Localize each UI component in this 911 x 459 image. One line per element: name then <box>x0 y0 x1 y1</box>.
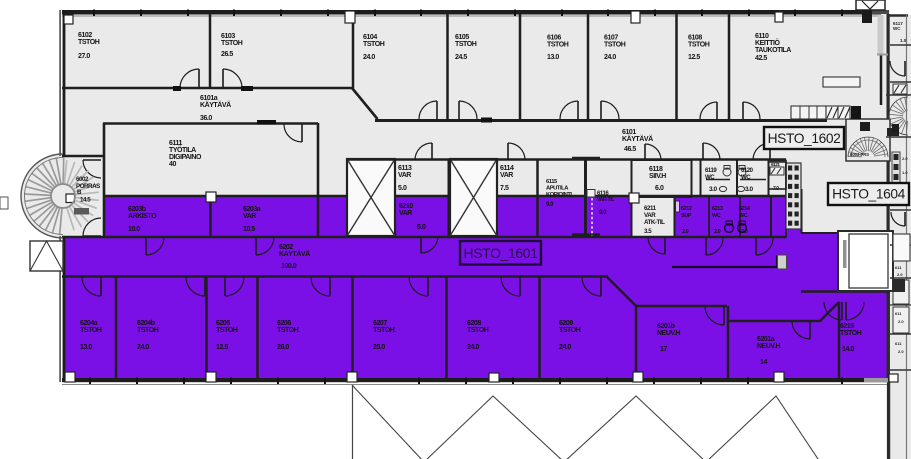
svg-text:2.0: 2.0 <box>902 156 908 161</box>
svg-text:6119: 6119 <box>705 168 717 174</box>
svg-text:6208: 6208 <box>467 320 481 327</box>
svg-text:10.0: 10.0 <box>128 226 140 233</box>
svg-text:TSTOH: TSTOH <box>688 42 710 49</box>
svg-text:6101: 6101 <box>622 129 636 136</box>
svg-text:ATK-TIL: ATK-TIL <box>644 219 665 226</box>
svg-text:611: 611 <box>895 265 902 270</box>
svg-text:6108: 6108 <box>688 35 702 42</box>
svg-text:6204b: 6204b <box>137 320 155 327</box>
svg-text:36.0: 36.0 <box>200 115 212 122</box>
svg-text:VAR: VAR <box>500 172 513 179</box>
svg-text:TSTOH: TSTOH <box>467 327 489 334</box>
svg-text:6106: 6106 <box>547 35 561 42</box>
svg-text:6213: 6213 <box>712 206 723 212</box>
svg-text:TSTOH: TSTOH <box>78 39 100 46</box>
svg-text:WC: WC <box>741 175 751 181</box>
svg-text:46.5: 46.5 <box>624 146 636 153</box>
svg-text:TAUKOTILA: TAUKOTILA <box>755 47 791 54</box>
svg-text:6114: 6114 <box>500 165 514 172</box>
svg-text:2.0: 2.0 <box>898 319 904 324</box>
svg-text:5.0: 5.0 <box>398 185 407 192</box>
svg-text:HSTO_1602: HSTO_1602 <box>768 131 841 146</box>
svg-text:6201b: 6201b <box>657 323 675 330</box>
svg-text:SIIV.H: SIIV.H <box>649 173 666 180</box>
svg-text:24.5: 24.5 <box>455 54 467 61</box>
svg-text:6102: 6102 <box>78 32 92 39</box>
svg-text:KÄYTÄVÄ: KÄYTÄVÄ <box>279 250 310 258</box>
svg-text:17: 17 <box>660 346 667 353</box>
svg-text:WC: WC <box>739 213 748 219</box>
svg-text:6211: 6211 <box>644 205 657 212</box>
svg-text:42.5: 42.5 <box>755 55 767 62</box>
svg-text:TSTOH: TSTOH <box>221 40 243 47</box>
svg-text:6215: 6215 <box>840 323 854 330</box>
svg-text:VAR: VAR <box>644 212 656 219</box>
svg-text:2.0: 2.0 <box>741 229 748 235</box>
svg-text:6207: 6207 <box>373 320 387 327</box>
svg-text:6204a: 6204a <box>80 320 98 327</box>
svg-text:40: 40 <box>169 161 176 168</box>
svg-text:5.0: 5.0 <box>417 224 426 231</box>
svg-text:HSTO_1604: HSTO_1604 <box>832 187 906 202</box>
svg-text:6203a: 6203a <box>243 206 261 213</box>
svg-text:12.5: 12.5 <box>216 344 228 351</box>
svg-text:APUTILA: APUTILA <box>546 186 569 192</box>
svg-text:6105: 6105 <box>455 34 469 41</box>
svg-text:24.0: 24.0 <box>559 344 571 351</box>
svg-text:6103: 6103 <box>221 33 235 40</box>
svg-text:26.5: 26.5 <box>221 51 233 58</box>
svg-text:6115: 6115 <box>546 179 558 185</box>
svg-text:25.0: 25.0 <box>373 344 385 351</box>
svg-text:6212: 6212 <box>681 206 692 212</box>
svg-text:24.0: 24.0 <box>604 54 616 61</box>
svg-text:6206: 6206 <box>277 320 291 327</box>
svg-text:NEUV.H: NEUV.H <box>657 330 681 337</box>
svg-text:3.5: 3.5 <box>644 228 652 235</box>
svg-text:DIGIPAINO: DIGIPAINO <box>169 154 202 161</box>
svg-text:14.5: 14.5 <box>80 197 91 204</box>
svg-text:6205: 6205 <box>216 320 230 327</box>
svg-text:2.0: 2.0 <box>898 349 904 354</box>
svg-text:6209: 6209 <box>559 320 573 327</box>
svg-text:6121: 6121 <box>771 162 780 167</box>
svg-text:TSTOH: TSTOH <box>363 41 385 48</box>
svg-text:100.0: 100.0 <box>281 263 297 270</box>
svg-text:14.0: 14.0 <box>842 346 854 353</box>
svg-text:TSTOH: TSTOH <box>137 327 159 334</box>
svg-text:6118: 6118 <box>649 166 663 173</box>
svg-text:2.0: 2.0 <box>682 229 689 235</box>
svg-text:9.0: 9.0 <box>599 210 607 216</box>
svg-text:6110: 6110 <box>755 33 769 40</box>
svg-text:NEUV.H: NEUV.H <box>757 343 781 350</box>
svg-text:6.0: 6.0 <box>655 185 664 192</box>
svg-text:TSTOH: TSTOH <box>373 327 395 334</box>
svg-text:WC: WC <box>712 213 721 219</box>
svg-text:TSTOH: TSTOH <box>559 327 581 334</box>
svg-text:7.5: 7.5 <box>500 185 509 192</box>
svg-text:TSTOH: TSTOH <box>216 327 238 334</box>
svg-text:10.5: 10.5 <box>243 226 255 233</box>
svg-text:TSTOH: TSTOH <box>604 42 626 49</box>
svg-text:2.0: 2.0 <box>897 272 903 277</box>
svg-text:6214: 6214 <box>739 206 751 212</box>
svg-text:6120: 6120 <box>741 168 754 174</box>
svg-text:24.0: 24.0 <box>137 344 149 351</box>
svg-text:WC: WC <box>705 175 715 181</box>
svg-text:VAR: VAR <box>398 172 411 179</box>
svg-text:9.0: 9.0 <box>546 202 554 208</box>
svg-text:611: 611 <box>895 311 902 316</box>
svg-text:2.0: 2.0 <box>714 229 721 235</box>
svg-text:KÄYTÄVÄ: KÄYTÄVÄ <box>200 101 231 109</box>
svg-text:KÄYTÄVÄ: KÄYTÄVÄ <box>622 135 653 143</box>
svg-text:WC: WC <box>893 26 901 31</box>
svg-text:TSTOH: TSTOH <box>277 327 299 334</box>
svg-text:6003 PRS: 6003 PRS <box>850 152 869 157</box>
svg-text:6101a: 6101a <box>200 95 218 102</box>
svg-text:6202: 6202 <box>279 244 293 251</box>
svg-text:1.0: 1.0 <box>900 38 907 43</box>
svg-text:TSTOH: TSTOH <box>80 327 102 334</box>
svg-text:14: 14 <box>760 359 767 366</box>
svg-text:VAR-TIL: VAR-TIL <box>597 197 615 203</box>
svg-text:6210: 6210 <box>399 203 413 210</box>
svg-text:12.5: 12.5 <box>688 54 700 61</box>
svg-text:TSTOH: TSTOH <box>547 42 569 49</box>
svg-text:6111: 6111 <box>169 140 183 147</box>
svg-text:HSTO_1601: HSTO_1601 <box>464 245 539 261</box>
svg-text:3.0: 3.0 <box>745 186 754 193</box>
svg-text:13.0: 13.0 <box>80 344 92 351</box>
svg-text:611: 611 <box>895 341 902 346</box>
svg-text:24.0: 24.0 <box>467 344 479 351</box>
svg-text:VAR: VAR <box>399 210 412 217</box>
svg-text:1.0: 1.0 <box>902 170 908 175</box>
svg-text:6203b: 6203b <box>128 206 146 213</box>
svg-text:6104: 6104 <box>363 34 377 41</box>
svg-text:6201a: 6201a <box>757 336 775 343</box>
svg-text:SUP: SUP <box>681 213 692 219</box>
svg-text:TSTOH: TSTOH <box>455 41 477 48</box>
svg-text:6113: 6113 <box>398 165 412 172</box>
svg-text:TYÖTILA: TYÖTILA <box>169 145 196 154</box>
svg-text:KEITTIÖ: KEITTIÖ <box>755 38 780 47</box>
svg-text:ARKISTO: ARKISTO <box>128 213 157 220</box>
svg-text:13.0: 13.0 <box>547 54 559 61</box>
svg-text:26.0: 26.0 <box>277 344 289 351</box>
svg-text:6002: 6002 <box>76 176 89 183</box>
svg-text:3.0: 3.0 <box>709 186 718 193</box>
svg-text:KOPIOINTI: KOPIOINTI <box>546 192 572 198</box>
svg-text:TSTOH: TSTOH <box>840 330 862 337</box>
svg-text:VAR: VAR <box>243 213 256 220</box>
svg-text:24.0: 24.0 <box>363 54 375 61</box>
svg-text:27.0: 27.0 <box>78 53 90 60</box>
svg-text:6107: 6107 <box>604 35 618 42</box>
